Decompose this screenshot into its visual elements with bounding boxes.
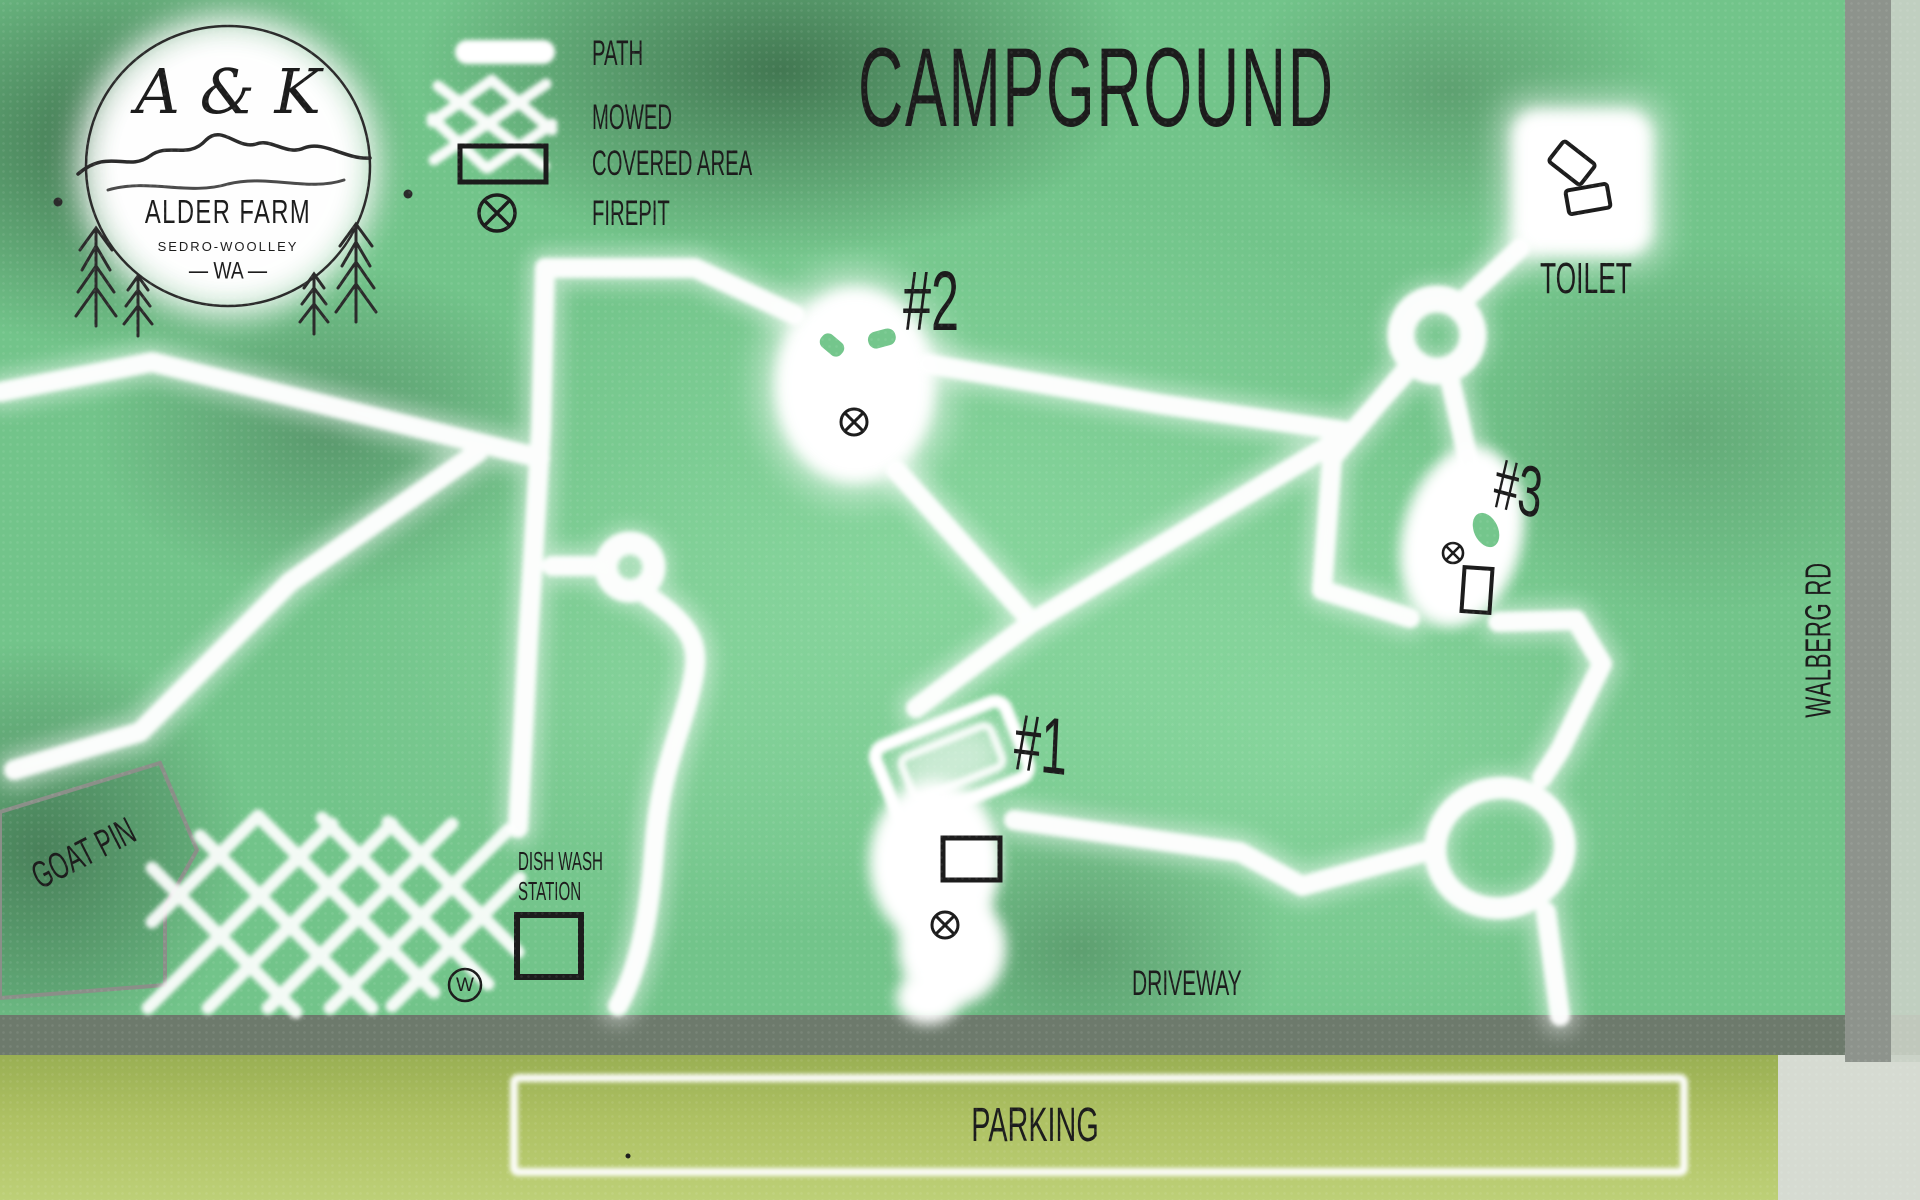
- path-to-site2: [545, 268, 795, 315]
- logo-initials: A & K: [135, 60, 321, 124]
- map-title: CAMPGROUND: [858, 30, 1335, 146]
- legend-mowed-swatch: [432, 80, 552, 168]
- legend-label-firepit: FIREPIT: [592, 196, 670, 232]
- toilet-label: TOILET: [1540, 256, 1632, 302]
- legend-firepit-icon: [479, 195, 515, 231]
- logo-state: — WA —: [189, 260, 267, 285]
- pale-corner: [1778, 1053, 1920, 1200]
- site1-label: #1: [1013, 700, 1070, 789]
- site1-tail: [896, 972, 960, 1024]
- stray-dot: [626, 1154, 631, 1159]
- path-site2-east: [928, 364, 1352, 432]
- walberg-road: [1845, 0, 1891, 1062]
- walberg-road-label: WALBERG RD: [1799, 562, 1836, 717]
- path-circle-junction: [1401, 299, 1473, 371]
- dish-wash-label-line2: STATION: [518, 878, 581, 905]
- legend-label-covered: COVERED AREA: [592, 146, 752, 182]
- road-shoulder: [1891, 0, 1920, 1062]
- path-site3-to-oval: [1498, 620, 1602, 778]
- dish-wash-label-line1: DISH WASH: [518, 848, 603, 875]
- legend-path-swatch: [455, 40, 555, 64]
- path-site2-south: [896, 470, 1032, 622]
- logo-city: SEDRO-WOOLLEY: [158, 240, 299, 254]
- site2-label: #2: [903, 258, 959, 345]
- path-oval-to-driveway: [1546, 912, 1560, 1016]
- dish-wash-square: [517, 915, 581, 977]
- parking-label: PARKING: [971, 1101, 1098, 1151]
- legend-label-path: PATH: [592, 36, 643, 72]
- driveway-label: DRIVEWAY: [1132, 966, 1242, 1002]
- path-circle-node: [606, 543, 654, 591]
- driveway-road: [0, 1015, 1920, 1055]
- campground-map: CAMPGROUND PATH MOWED COVERED AREA FIREP…: [0, 0, 1920, 1200]
- legend-label-mowed: MOWED: [592, 100, 672, 136]
- water-marker-letter: W: [456, 976, 474, 996]
- logo-farm-name: ALDER FARM: [145, 195, 311, 229]
- map-shapes: [0, 0, 1920, 1200]
- site3-label: #3: [1491, 446, 1545, 532]
